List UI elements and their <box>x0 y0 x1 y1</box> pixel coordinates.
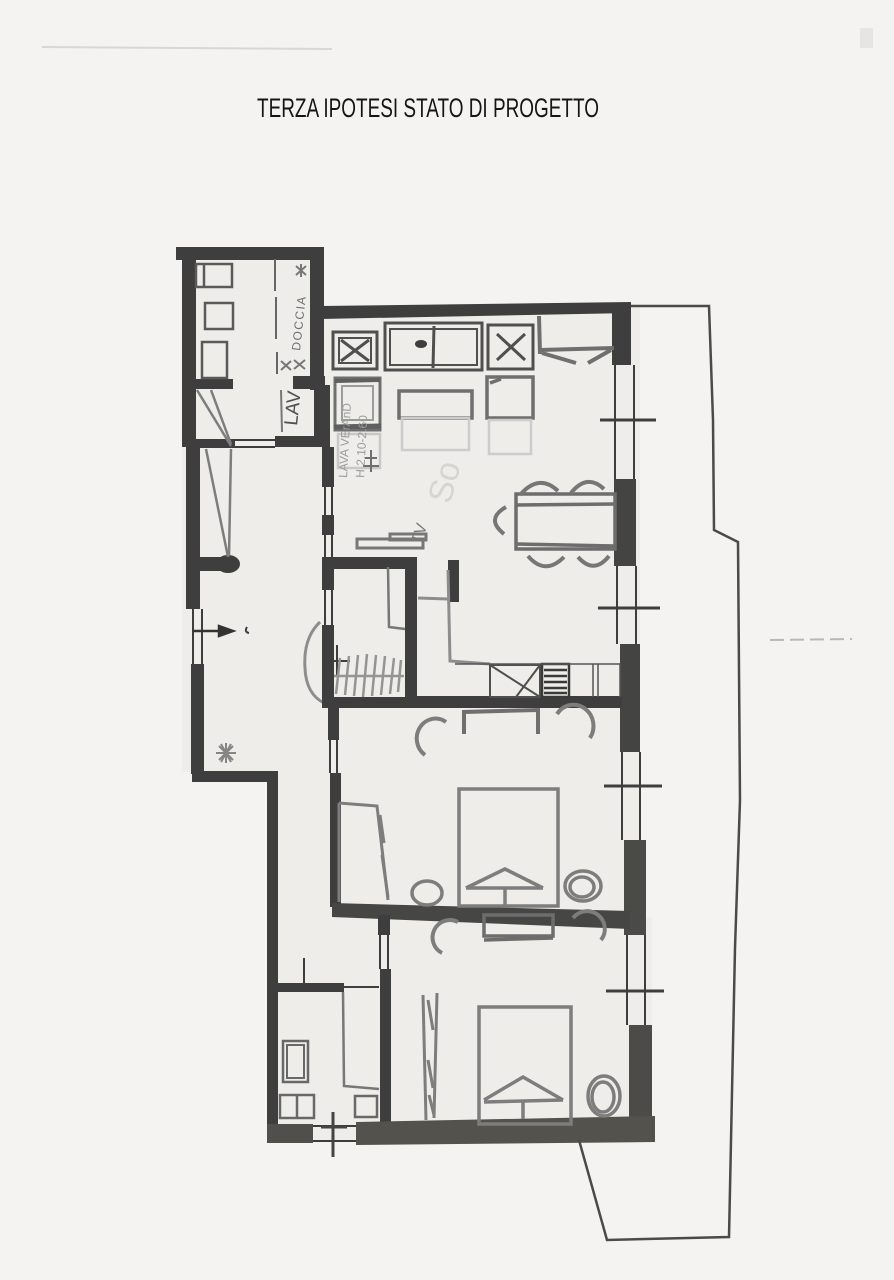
svg-text:TERZA IPOTESI STATO DI PROGETT: TERZA IPOTESI STATO DI PROGETTO <box>257 93 599 123</box>
svg-text:LAV: LAV <box>281 390 306 427</box>
